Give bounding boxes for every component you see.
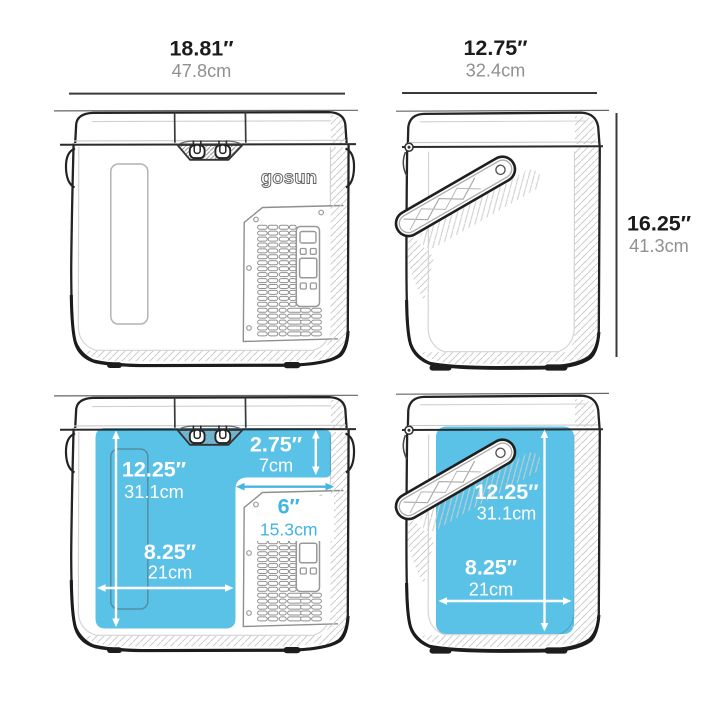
- svg-text:21cm: 21cm: [469, 580, 513, 600]
- svg-text:31.1cm: 31.1cm: [124, 482, 184, 502]
- svg-text:7cm: 7cm: [259, 456, 293, 476]
- svg-text:12.75″: 12.75″: [463, 36, 527, 60]
- svg-text:31.1cm: 31.1cm: [477, 504, 537, 524]
- svg-text:8.25″: 8.25″: [144, 540, 196, 564]
- svg-text:2.75″: 2.75″: [250, 432, 302, 456]
- svg-text:47.8cm: 47.8cm: [172, 61, 232, 81]
- svg-text:41.3cm: 41.3cm: [629, 236, 689, 256]
- svg-text:12.25″: 12.25″: [122, 458, 186, 482]
- svg-text:16.25″: 16.25″: [627, 212, 691, 236]
- svg-text:21cm: 21cm: [148, 563, 192, 583]
- svg-text:15.3cm: 15.3cm: [260, 520, 318, 540]
- svg-text:12.25″: 12.25″: [474, 480, 538, 504]
- svg-text:32.4cm: 32.4cm: [466, 61, 526, 81]
- svg-text:8.25″: 8.25″: [465, 556, 517, 580]
- svg-text:6″: 6″: [278, 494, 300, 518]
- svg-text:18.81″: 18.81″: [169, 37, 233, 61]
- svg-text:gosun: gosun: [261, 167, 318, 188]
